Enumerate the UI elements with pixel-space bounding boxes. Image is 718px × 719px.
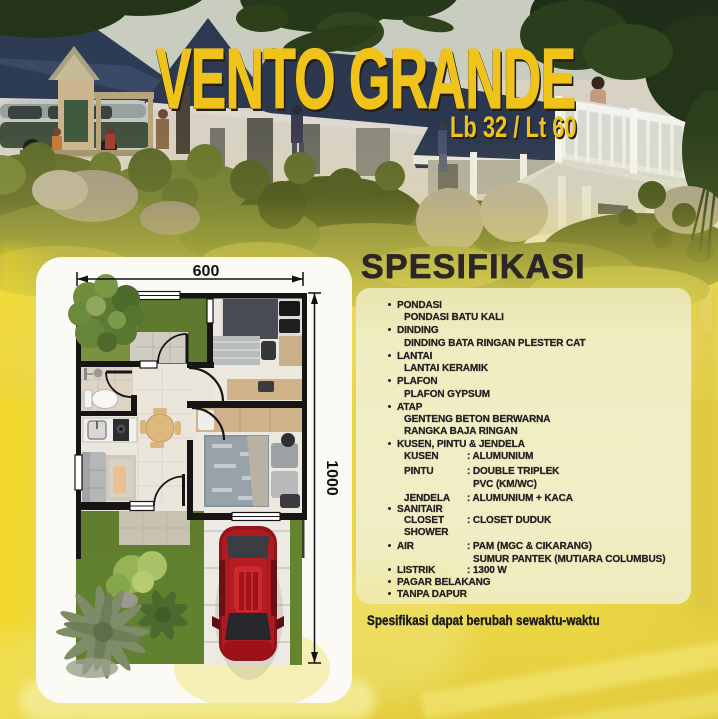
svg-text:600: 600 (193, 263, 220, 280)
svg-text:1000: 1000 (323, 460, 340, 496)
